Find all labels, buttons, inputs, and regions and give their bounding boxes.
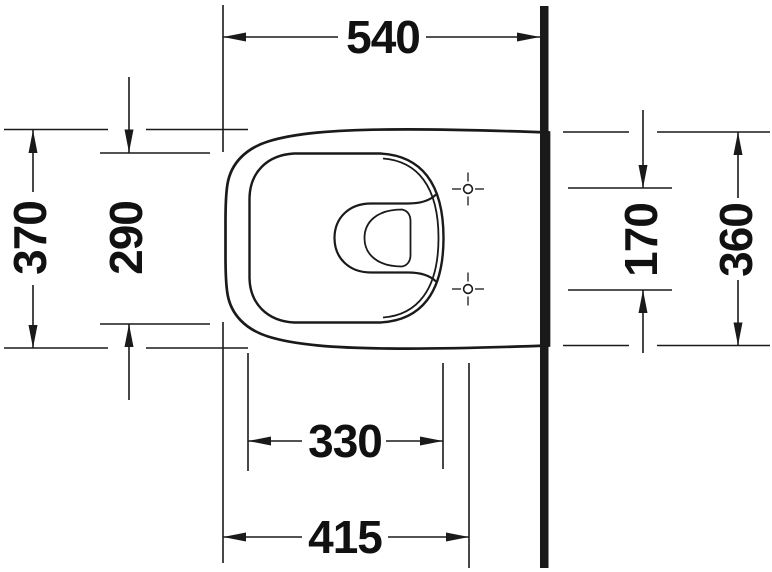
dim-label-415: 415	[308, 511, 382, 563]
arrowhead-down	[29, 325, 38, 348]
dim-seat-hole-spacing: 170	[568, 110, 672, 353]
arrowhead-up	[29, 130, 38, 153]
dim-label-540: 540	[346, 11, 420, 63]
dim-label-330: 330	[308, 415, 382, 467]
arrowhead-down	[639, 165, 648, 188]
dim-label-360: 360	[710, 203, 762, 277]
wall-section-bar	[540, 6, 549, 568]
technical-drawing-canvas: 540 370 290	[0, 0, 772, 572]
dim-label-370: 370	[4, 201, 56, 275]
dim-label-170: 170	[615, 203, 667, 277]
dim-label-290: 290	[100, 201, 152, 275]
arrowhead-down	[734, 323, 743, 346]
toilet-plan-drawing: 540 370 290	[0, 0, 772, 572]
dim-bowl-inner-length: 330	[248, 353, 443, 471]
arrowhead-left	[223, 33, 246, 42]
dim-bowl-inner-width: 290	[100, 77, 210, 400]
arrowhead-left	[223, 533, 246, 542]
arrowhead-right	[420, 437, 443, 446]
arrowhead-up	[639, 290, 648, 313]
arrowhead-down	[125, 130, 134, 153]
arrowhead-left	[248, 437, 271, 446]
arrowhead-up	[734, 132, 743, 155]
arrowhead-right	[446, 533, 469, 542]
bowl-inner-rim-outline	[250, 154, 444, 323]
arrowhead-right	[517, 33, 540, 42]
arrowhead-up	[125, 324, 134, 347]
